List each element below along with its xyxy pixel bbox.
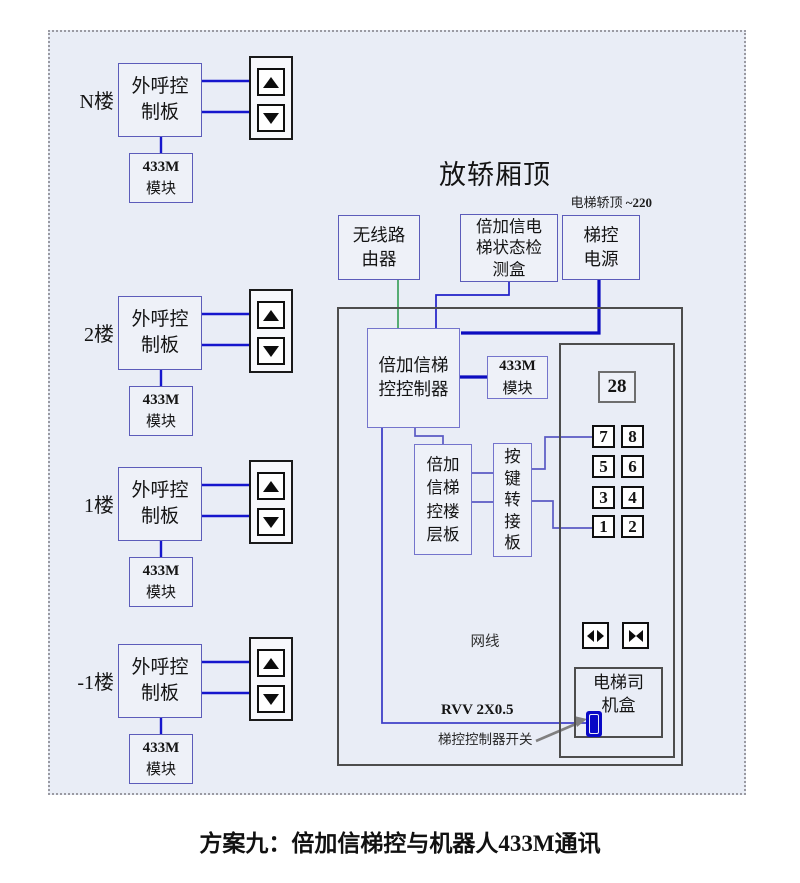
- down-arrow-icon: [263, 113, 279, 124]
- hall-call-board: 外呼控制板: [118, 296, 202, 370]
- car-top-title: 放轿厢顶: [425, 153, 565, 192]
- floor-unit-n: N楼 外呼控制板 433M模块: [0, 63, 320, 213]
- up-arrow-icon: [263, 310, 279, 321]
- power-note-value: ~220: [626, 195, 652, 210]
- up-arrow-icon: [263, 658, 279, 669]
- hall-call-board-label: 外呼控制板: [130, 478, 190, 529]
- caption: 方案九：倍加信梯控与机器人433M通讯: [0, 824, 800, 858]
- floor-board-box: 倍加信梯控楼层板: [414, 444, 472, 555]
- door-open-icon: [587, 630, 604, 642]
- down-button[interactable]: [257, 337, 285, 365]
- up-button[interactable]: [257, 301, 285, 329]
- down-arrow-icon: [263, 694, 279, 705]
- hall-call-board: 外呼控制板: [118, 644, 202, 718]
- floor-label: -1楼: [46, 666, 114, 695]
- hall-call-board: 外呼控制板: [118, 63, 202, 137]
- cop-button-label: 7: [599, 427, 608, 447]
- controller-switch[interactable]: [586, 711, 602, 737]
- radio-module-box: 433M模块: [129, 386, 193, 436]
- floor-label: 2楼: [52, 318, 114, 347]
- hall-call-board-label: 外呼控制板: [130, 74, 190, 125]
- up-arrow-icon: [263, 77, 279, 88]
- hall-call-board-label: 外呼控制板: [130, 307, 190, 358]
- floor-board-label: 倍加信梯控楼层板: [425, 453, 461, 545]
- down-arrow-icon: [263, 517, 279, 528]
- hall-call-board: 外呼控制板: [118, 467, 202, 541]
- radio-module-label: 433M模块: [143, 560, 180, 605]
- cop-button-label: 2: [628, 517, 637, 537]
- status-detector-box: 倍加信电梯状态检测盒: [460, 214, 558, 282]
- cop-button-1[interactable]: 1: [592, 515, 615, 538]
- floor-unit-2: 2楼 外呼控制板 433M模块: [0, 296, 320, 446]
- power-note: 电梯轿顶 ~220: [540, 192, 652, 211]
- floor-display: 28: [598, 371, 636, 403]
- floor-unit-1: 1楼 外呼控制板 433M模块: [0, 467, 320, 617]
- net-cable-label: 网线: [450, 630, 520, 651]
- wireless-router-box: 无线路由器: [338, 215, 420, 280]
- cop-button-label: 3: [599, 488, 608, 508]
- rvv-label: RVV 2X0.5: [441, 702, 531, 719]
- power-note-prefix: 电梯轿顶: [570, 195, 625, 210]
- status-detector-label: 倍加信电梯状态检测盒: [475, 216, 543, 279]
- door-close-button[interactable]: [622, 622, 649, 649]
- cop-button-7[interactable]: 7: [592, 425, 615, 448]
- controller-switch-face: [589, 714, 599, 734]
- down-button[interactable]: [257, 508, 285, 536]
- elevator-controller-box: 倍加信梯控控制器: [367, 328, 460, 428]
- down-button[interactable]: [257, 104, 285, 132]
- elevator-power-box: 梯控电源: [562, 215, 640, 280]
- switch-label: 梯控控制器开关: [438, 728, 548, 748]
- down-arrow-icon: [263, 346, 279, 357]
- radio-module-label: 433M模块: [143, 737, 180, 782]
- key-adapter-box: 按键转接板: [493, 443, 532, 557]
- floor-label: 1楼: [52, 489, 114, 518]
- cop-button-2[interactable]: 2: [621, 515, 644, 538]
- cop-button-label: 8: [628, 427, 637, 447]
- cop-button-label: 1: [599, 517, 608, 537]
- radio-module-box: 433M模块: [129, 557, 193, 607]
- key-adapter-label: 按键转接板: [504, 446, 522, 553]
- cop-button-label: 5: [599, 457, 608, 477]
- up-button[interactable]: [257, 68, 285, 96]
- radio-module-label: 433M模块: [143, 156, 180, 201]
- radio-module-label: 433M模块: [499, 355, 536, 400]
- up-button[interactable]: [257, 649, 285, 677]
- door-close-icon: [629, 630, 643, 642]
- floor-label: N楼: [52, 85, 114, 114]
- cop-button-3[interactable]: 3: [592, 486, 615, 509]
- up-button[interactable]: [257, 472, 285, 500]
- cop-button-8[interactable]: 8: [621, 425, 644, 448]
- radio-module-box: 433M模块: [129, 734, 193, 784]
- cop-button-5[interactable]: 5: [592, 455, 615, 478]
- down-button[interactable]: [257, 685, 285, 713]
- radio-module-box-cartop: 433M模块: [487, 356, 548, 399]
- cop-button-label: 4: [628, 488, 637, 508]
- floor-unit-minus1: -1楼 外呼控制板 433M模块: [0, 644, 320, 794]
- cop-button-label: 6: [628, 457, 637, 477]
- hall-call-board-label: 外呼控制板: [130, 655, 190, 706]
- elevator-power-label: 梯控电源: [582, 224, 620, 271]
- up-arrow-icon: [263, 481, 279, 492]
- cop-button-6[interactable]: 6: [621, 455, 644, 478]
- elevator-controller-label: 倍加信梯控控制器: [378, 354, 450, 401]
- wireless-router-label: 无线路由器: [351, 224, 407, 271]
- cop-button-4[interactable]: 4: [621, 486, 644, 509]
- radio-module-label: 433M模块: [143, 389, 180, 434]
- radio-module-box: 433M模块: [129, 153, 193, 203]
- door-open-button[interactable]: [582, 622, 609, 649]
- scheme-diagram: N楼 外呼控制板 433M模块 2楼 外呼控制板 433M模块 1楼 外呼控制板…: [0, 0, 800, 883]
